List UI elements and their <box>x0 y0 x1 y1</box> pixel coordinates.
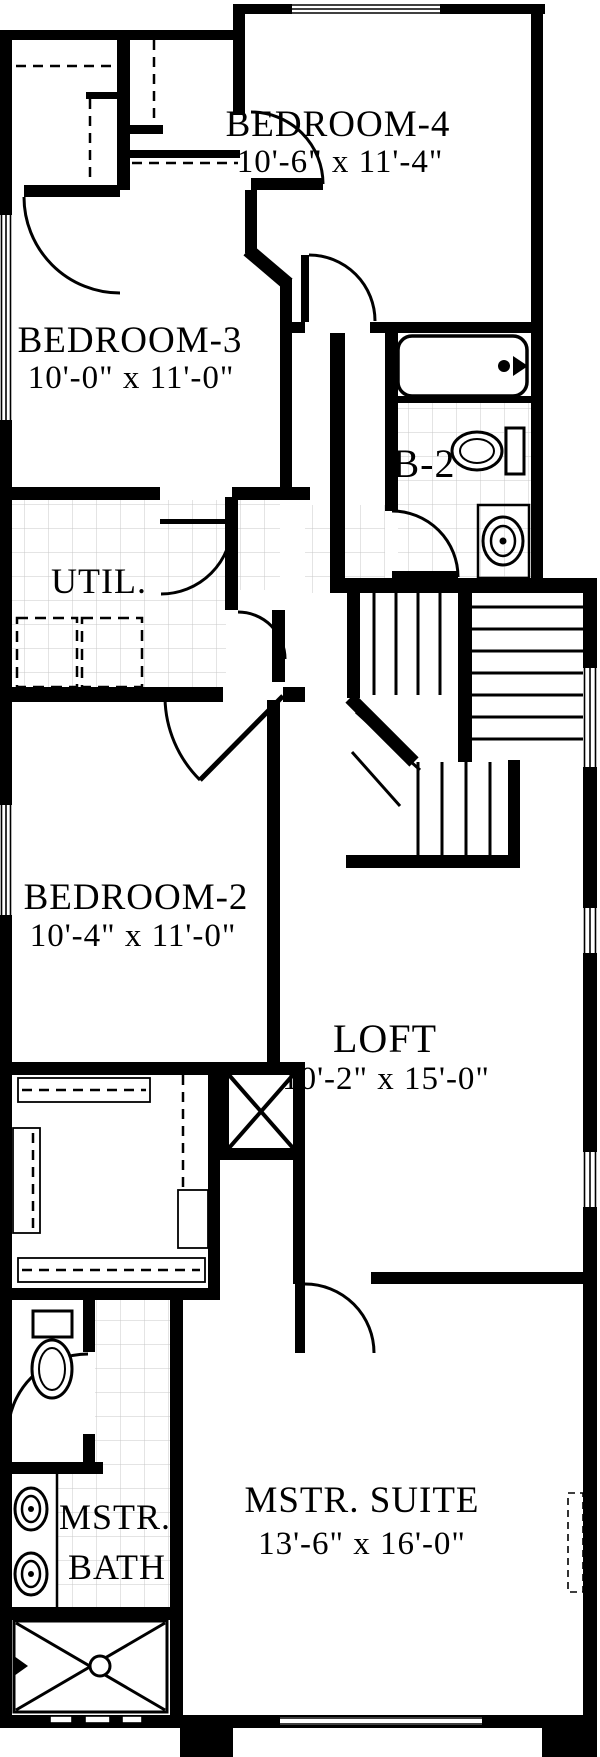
wall-closet-east <box>208 1075 220 1300</box>
door-hall-bath2 <box>301 255 375 322</box>
door-master-suite <box>295 1284 374 1353</box>
window-bed4-top <box>292 4 440 14</box>
wall-toilet-north <box>12 1288 208 1300</box>
wall-bed2-east <box>267 700 280 1062</box>
window-loft-right-3 <box>583 1152 597 1207</box>
linen-cabinet <box>178 1190 208 1248</box>
wall-diagonal-stair <box>350 698 414 762</box>
wall-vestibule <box>245 190 257 253</box>
wall-stub-hall <box>292 322 305 333</box>
wall-right-upper <box>531 4 543 590</box>
wall-stair-west <box>347 590 360 698</box>
winder-tread-1 <box>356 712 420 770</box>
wall-loft-west <box>293 1160 305 1284</box>
wall-vanity-north <box>12 1462 103 1474</box>
wall-closet-stub2 <box>130 125 163 134</box>
floor-plan-drawing: BEDROOM-4 10'-6" x 11'-4" BEDROOM-3 10'-… <box>0 0 600 1757</box>
door-bedroom2 <box>165 696 283 780</box>
wall-stair-top <box>340 578 597 593</box>
wall-bed2-north <box>12 687 223 702</box>
wall-top-left <box>0 30 245 40</box>
wall-stair-south <box>346 855 520 868</box>
window-loft-right-1 <box>583 668 597 767</box>
dims-bedroom4: 10'-6" x 11'-4" <box>237 144 444 180</box>
master-closet-shelf-lower <box>18 1258 205 1282</box>
dims-bedroom2: 10'-4" x 11'-0" <box>30 918 237 954</box>
wall-diagonal-bed3 <box>248 250 288 284</box>
wall-bed3-south-right <box>232 487 310 500</box>
master-closet-rod-left <box>13 1128 40 1233</box>
label-bath2: B-2 <box>393 441 456 486</box>
door-utility <box>238 610 285 682</box>
wall-bed3-east <box>280 278 292 500</box>
master-closet-shelf-upper <box>18 1078 150 1102</box>
wall-stub-bottom-left <box>180 1728 233 1757</box>
wall-suite-north <box>371 1272 597 1284</box>
wall-closet-stub <box>86 92 117 99</box>
floor-plan-page: BEDROOM-4 10'-6" x 11'-4" BEDROOM-3 10'-… <box>0 0 600 1757</box>
wall-closet-divider <box>117 40 130 190</box>
toilet-master <box>32 1311 72 1398</box>
chase-wall-bottom <box>217 1148 305 1160</box>
double-vanity-sinks <box>15 1488 47 1595</box>
wall-closet-south <box>130 150 240 158</box>
wall-bath2-north <box>377 322 543 333</box>
wall-bed2-south <box>12 1062 305 1075</box>
window-bed3-left <box>0 215 12 420</box>
wall-shower-north <box>12 1607 182 1620</box>
wall-stub-bottom-right <box>542 1728 597 1757</box>
window-suite-right-dashed <box>568 1493 583 1592</box>
window-suite-bottom <box>280 1717 482 1725</box>
shower-head-icon <box>14 1656 28 1676</box>
wall-bed3-south-left <box>12 487 160 500</box>
label-master-bath-1: MSTR. <box>59 1497 171 1537</box>
bathtub <box>398 336 528 396</box>
winder-tread-2 <box>352 752 400 806</box>
dims-master-suite: 13'-6" x 16'-0" <box>258 1526 466 1562</box>
label-bedroom3: BEDROOM-3 <box>18 320 243 361</box>
wall-bath-east <box>170 1288 183 1715</box>
label-master-bath-2: BATH <box>68 1547 166 1587</box>
wall-hall-west <box>330 333 345 593</box>
shower <box>14 1621 167 1712</box>
wall-toilet-east-upper <box>83 1300 95 1352</box>
door-bed3-closet <box>24 185 120 293</box>
label-bedroom2: BEDROOM-2 <box>24 877 249 918</box>
doors <box>8 112 458 1434</box>
wall-stair-divider <box>458 593 472 762</box>
label-bedroom4: BEDROOM-4 <box>226 104 451 145</box>
label-loft: LOFT <box>333 1016 437 1061</box>
window-shower-slits <box>50 1716 142 1723</box>
master-bath-tile-lower <box>57 1474 170 1607</box>
toilet-bath2 <box>452 428 524 474</box>
dims-bedroom3: 10'-0" x 11'-0" <box>28 360 235 396</box>
hall-tile-floor <box>160 500 280 590</box>
label-master-suite: MSTR. SUITE <box>244 1480 479 1521</box>
window-loft-right-2 <box>583 908 597 953</box>
master-bath-tile-upper <box>95 1300 170 1474</box>
label-utility: UTIL. <box>51 561 147 601</box>
wall-stair-east-lower <box>508 760 520 855</box>
window-bed2-left <box>0 805 12 915</box>
wall-bed4-entry <box>233 14 245 115</box>
wall-bed2-north-stub <box>283 687 305 702</box>
dims-loft: 10'-2" x 15'-0" <box>282 1061 490 1097</box>
